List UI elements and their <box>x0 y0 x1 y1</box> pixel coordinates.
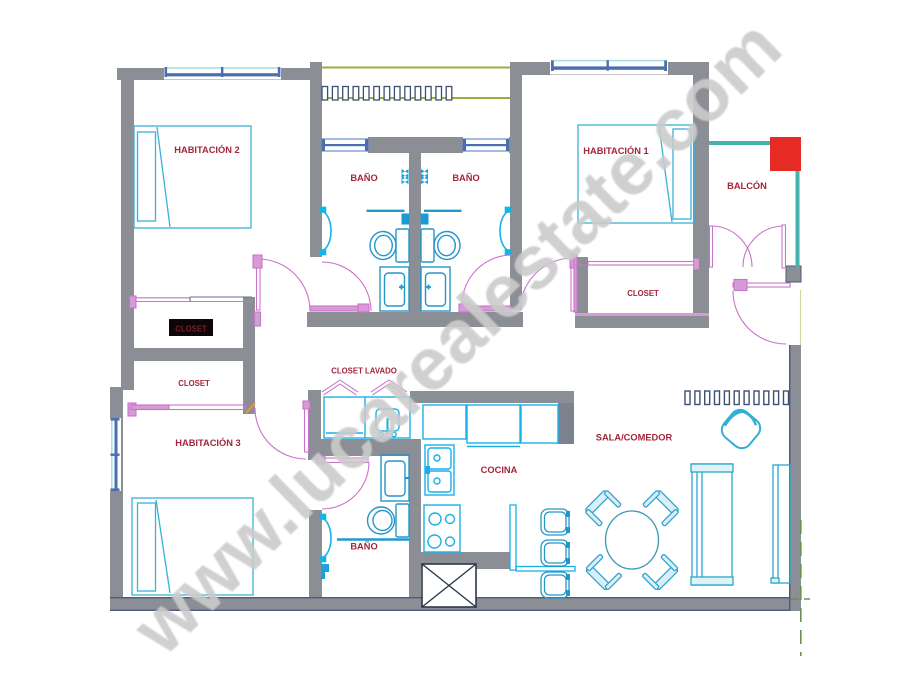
svg-text:HABITACIÓN 3: HABITACIÓN 3 <box>175 437 240 448</box>
svg-text:BAÑO: BAÑO <box>350 542 377 552</box>
svg-text:COCINA: COCINA <box>481 465 518 475</box>
svg-text:BAÑO: BAÑO <box>350 173 377 183</box>
svg-text:CLOSET: CLOSET <box>627 289 659 298</box>
svg-text:HABITACIÓN 2: HABITACIÓN 2 <box>174 144 239 155</box>
svg-text:CLOSET: CLOSET <box>178 379 210 388</box>
svg-text:BAÑO: BAÑO <box>452 173 479 183</box>
svg-text:SALA/COMEDOR: SALA/COMEDOR <box>596 433 673 443</box>
svg-text:CLOSET: CLOSET <box>175 325 207 334</box>
svg-text:BALCÓN: BALCÓN <box>727 180 767 191</box>
